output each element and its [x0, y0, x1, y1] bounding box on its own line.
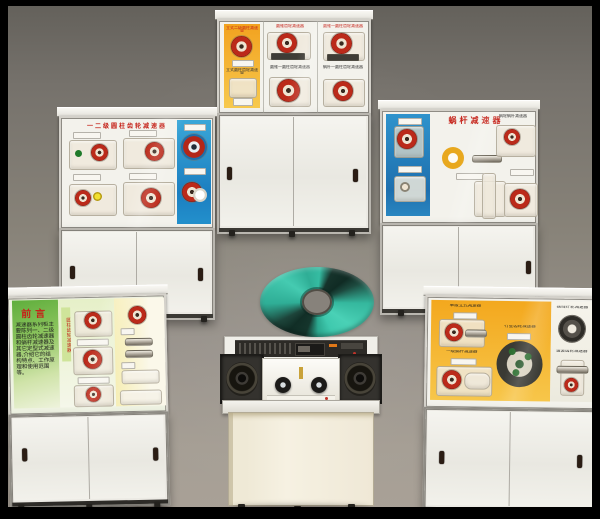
preface-body: 减速器系列柜主要陈列一、二级圆柱齿轮减速器和蜗杆减速器及其它定型式减速器,介绍它…	[15, 322, 57, 405]
model-label: 立式二级圆柱减速器	[225, 26, 259, 32]
display-case: 单级立式减速器 一级蜗杆减速器 行星齿轮减速器 摆线针轮减速器	[424, 295, 592, 411]
model-label: 单级立式减速器	[441, 304, 489, 312]
motor-model	[464, 372, 490, 389]
bracket-model	[121, 369, 159, 384]
cassette-window	[295, 343, 325, 356]
bracket-model	[120, 389, 162, 405]
gear-model	[510, 189, 530, 209]
label-chip	[129, 173, 157, 180]
cd-disc	[260, 267, 374, 337]
label-chip	[78, 377, 110, 385]
gear-model	[181, 134, 207, 160]
label-chip	[184, 168, 206, 175]
gear-model	[397, 129, 417, 149]
door-handle	[526, 261, 531, 274]
label-chip	[77, 339, 109, 347]
model-hub	[400, 182, 410, 192]
label-chip	[129, 130, 157, 137]
cabinet-bottom-left: 前言 减速器系列柜主要陈列一、二级圆柱齿轮减速器和蜗杆减速器及其它定型式减速器,…	[8, 284, 172, 507]
gear-model	[445, 323, 463, 341]
gold-ornament	[299, 367, 303, 379]
display-case: 前言 减速器系列柜主要陈列一、二级圆柱齿轮减速器和蜗杆减速器及其它定型式减速器,…	[8, 293, 168, 416]
preface-title: 前言	[15, 305, 55, 319]
indicator-dot	[509, 348, 516, 355]
gear-model	[91, 144, 108, 161]
label-chip	[510, 169, 534, 176]
gear-model	[277, 79, 300, 102]
glass-seam	[317, 21, 318, 113]
model-label: 圆锥一圆柱齿轮减速器	[319, 24, 367, 30]
speaker-cone	[226, 362, 258, 396]
orange-panel: 单级立式减速器 一级蜗杆减速器 行星齿轮减速器	[430, 300, 551, 402]
door-handle	[577, 455, 582, 468]
cabinet-foot	[201, 316, 207, 322]
label-chip	[232, 60, 254, 67]
shaft-model	[125, 350, 153, 359]
model-label: 行星齿轮减速器	[495, 325, 545, 333]
white-column: 摆线针轮减速器 谐波齿轮减速器	[550, 302, 592, 403]
label-chip	[451, 358, 477, 365]
shaft-model	[556, 366, 588, 374]
gear-model	[504, 129, 520, 145]
blue-panel	[177, 120, 211, 224]
audio-console	[220, 334, 380, 507]
label-chip	[398, 166, 422, 173]
shaft-model	[125, 338, 153, 347]
model-label: 立式圆柱齿轮减速器	[225, 68, 259, 74]
cabinet-foot	[18, 504, 24, 507]
label-chip	[398, 118, 422, 125]
door-handle	[198, 268, 203, 281]
label-chip	[121, 362, 135, 369]
model-base	[271, 53, 305, 60]
gear-model	[141, 188, 161, 208]
cabinet-foot	[398, 310, 404, 316]
model-label: 蜗轮蜗杆减速器	[492, 114, 534, 120]
glass-seam	[263, 21, 264, 113]
display-case: 蜗杆减速器 蜗轮蜗杆减速器	[380, 109, 538, 225]
gear-model	[145, 142, 164, 161]
indicator-dot	[75, 150, 82, 157]
label-chip	[184, 124, 206, 131]
door-handle	[353, 169, 358, 182]
blue-panel	[386, 114, 430, 216]
model-label: 蜗杆一圆柱齿轮减速器	[319, 65, 367, 71]
model-label: 圆锥一圆柱齿轮减速器	[265, 65, 315, 71]
speaker-cone	[344, 362, 376, 396]
photo-frame: 立式二级圆柱减速器 立式圆柱齿轮减速器 圆锥齿轮减速器 圆锥一圆柱齿轮减速器 圆…	[0, 0, 600, 519]
model-label: 圆锥齿轮减速器	[265, 24, 315, 30]
label-chip	[456, 173, 484, 180]
orange-panel: 立式二级圆柱减速器 立式圆柱齿轮减速器	[224, 24, 260, 108]
label-chip	[507, 333, 531, 340]
cd-center-hole	[302, 289, 332, 315]
display-case: 立式二级圆柱减速器 立式圆柱齿轮减速器 圆锥齿轮减速器 圆锥一圆柱齿轮减速器 圆…	[217, 19, 371, 115]
door-handle	[22, 448, 27, 461]
cabinet-bottom-right: 单级立式减速器 一级蜗杆减速器 行星齿轮减速器 摆线针轮减速器	[420, 286, 592, 507]
gear-model	[564, 378, 578, 392]
gear-model	[331, 33, 352, 54]
side-strip-label: 圆柱齿轮减速器	[61, 307, 71, 361]
cabinet-foot	[229, 230, 235, 236]
door-handle	[153, 448, 158, 461]
label-chip	[121, 328, 135, 335]
indicator-dot	[525, 353, 532, 360]
power-led	[329, 344, 337, 347]
models-panel-middle: 圆柱齿轮减速器	[58, 298, 116, 407]
label-chip	[73, 132, 101, 139]
door-handle	[439, 451, 444, 464]
cabinet-top-right: 蜗杆减速器 蜗轮蜗杆减速器	[378, 100, 540, 316]
gear-model	[277, 33, 297, 53]
cupboard	[8, 411, 170, 507]
cabinet-title: 一二级圆柱齿轮减速器	[75, 121, 179, 130]
floor-shadow	[230, 505, 370, 507]
speaker-right	[338, 354, 382, 404]
label-chip	[233, 98, 253, 106]
planetary-gear-model	[496, 341, 543, 388]
door-handle	[70, 266, 75, 279]
control-deck	[262, 358, 340, 404]
button-row	[341, 343, 363, 349]
console-base	[228, 412, 374, 506]
showroom-scene: 立式二级圆柱减速器 立式圆柱齿轮减速器 圆锥齿轮减速器 圆锥一圆柱齿轮减速器 圆…	[8, 6, 592, 507]
green-panel: 前言 减速器系列柜主要陈列一、二级圆柱齿轮减速器和蜗杆减速器及其它定型式减速器,…	[12, 300, 60, 409]
display-case: 一二级圆柱齿轮减速器	[59, 116, 215, 230]
model-housing	[229, 78, 257, 98]
model-label: 一级蜗杆减速器	[439, 350, 485, 358]
disc-model	[193, 188, 207, 202]
shaft-model	[465, 329, 487, 337]
indicator-dot	[93, 192, 102, 201]
gear-model	[75, 190, 91, 206]
cupboard	[217, 113, 371, 234]
dial-knob-right	[311, 377, 327, 393]
model-housing	[482, 173, 496, 219]
dial-knob-left	[275, 377, 291, 393]
cabinet-top-center: 立式二级圆柱减速器 立式圆柱齿轮减速器 圆锥齿轮减速器 圆锥一圆柱齿轮减速器 圆…	[215, 10, 373, 236]
cycloid-gear-model	[559, 316, 585, 342]
model-label: 谐波齿轮减速器	[552, 350, 592, 358]
slider-bank	[239, 343, 291, 354]
cabinet-foot	[289, 231, 295, 237]
cupboard	[422, 407, 592, 507]
model-housing	[394, 176, 426, 202]
door-handle	[227, 167, 232, 180]
yellow-gear-model	[442, 147, 464, 169]
model-label: 摆线针轮减速器	[553, 306, 591, 314]
speaker-left	[220, 354, 264, 404]
model-base	[327, 54, 359, 61]
cabinet-foot	[349, 230, 355, 236]
parts-panel-right	[114, 297, 166, 406]
indicator-dot	[512, 369, 519, 376]
gear-model	[128, 306, 146, 324]
label-chip	[73, 174, 101, 181]
display-window	[298, 346, 310, 352]
gear-model	[333, 81, 353, 101]
gear-model	[231, 36, 252, 57]
